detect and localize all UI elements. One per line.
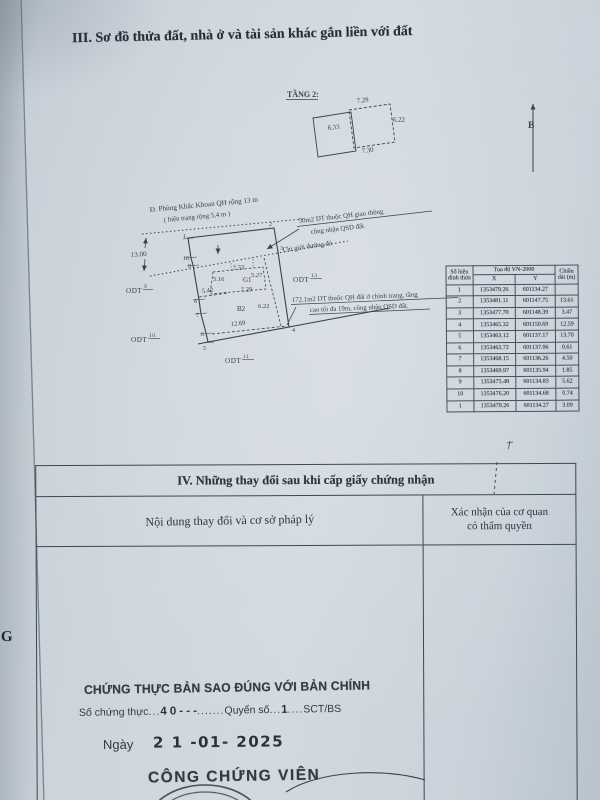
edge-cut-letter: G [1, 629, 13, 646]
svg-text:ODT: ODT [225, 357, 241, 365]
coord-cell: 1353465.32 [473, 319, 516, 331]
coord-header-y: Y [515, 274, 555, 284]
coord-cell: 3.47 [555, 307, 578, 319]
coord-cell: 1353463.12 [473, 330, 516, 342]
coord-header-length: Chiều dài (m) [555, 265, 578, 284]
coord-row: 11353479.26601134.273.09 [447, 400, 579, 413]
svg-text:7.33: 7.33 [233, 264, 245, 272]
coord-row: 71353468.15601136.264.50 [447, 353, 579, 366]
coord-cell: 5 [446, 331, 473, 343]
odt-zone-labels: ODT 9 ODT 10 ODT 11 ODT 13 [126, 273, 322, 365]
coord-cell: 8 [447, 366, 474, 378]
coord-row: 81353469.97601135.941.85 [447, 365, 579, 378]
svg-text:ODT: ODT [126, 287, 142, 295]
coord-cell: 601137.06 [516, 342, 556, 354]
floor-plan-solid-room [313, 112, 356, 157]
changes-left-header: Nội dung thay đổi và cơ sở pháp lý [36, 495, 423, 546]
coord-cell: 1353481.11 [473, 296, 516, 308]
coord-cell: 601134.83 [516, 377, 556, 389]
coord-row: 91353475.48601134.835.62 [447, 376, 579, 389]
changes-right-cell [424, 545, 577, 800]
coord-cell: 13.70 [556, 330, 579, 342]
coord-cell: 0.74 [556, 388, 579, 400]
svg-text:9: 9 [144, 284, 147, 290]
coord-cell: 1.85 [556, 365, 579, 377]
changes-left-cell [37, 545, 425, 800]
coord-cell: 4.50 [556, 353, 579, 365]
coord-cell: 601134.68 [516, 388, 556, 400]
coord-cell: 601134.27 [516, 400, 556, 412]
svg-text:7.29: 7.29 [241, 286, 253, 294]
red-line-label: Chỉ giới đường đỏ [282, 240, 333, 254]
coord-cell: 601134.27 [516, 284, 556, 296]
parcel-dimensions: 7.33 5.16 5.27 7.29 5.42 6.22 12.69 G1 B… [201, 264, 269, 328]
floor-dim-bottom: 7.30 [361, 147, 374, 155]
svg-text:13: 13 [311, 273, 318, 279]
svg-text:5.42: 5.42 [201, 287, 213, 295]
coord-header-x: X [473, 275, 516, 285]
svg-text:8: 8 [194, 299, 197, 305]
date-stamp: 2 1 -01- 2025 [153, 732, 284, 751]
coordinate-table: Số hiệu đỉnh thửa Tọa độ VN-2000 Chiều d… [445, 265, 579, 413]
coord-cell: 601137.17 [516, 330, 556, 342]
scanned-document-page: III. Sơ đồ thửa đất, nhà ở và tài sản kh… [0, 0, 600, 800]
coord-cell: 1353479.26 [474, 400, 517, 412]
svg-text:4: 4 [292, 328, 295, 334]
street-name: Đ. Phùng Khắc Khoan QH rộng 13 m [149, 196, 258, 214]
north-arrow-icon: B [528, 104, 535, 172]
coord-cell: 1353479.26 [473, 284, 516, 296]
coord-cell: 12.59 [555, 318, 578, 330]
coord-cell: 601147.75 [516, 295, 556, 307]
svg-text:5.16: 5.16 [213, 276, 225, 283]
parcel-outline [183, 228, 390, 344]
svg-text:5.27: 5.27 [251, 272, 263, 279]
coord-cell: 0.61 [556, 342, 579, 354]
svg-text:11: 11 [243, 354, 249, 360]
coord-cell: 1353476.20 [474, 388, 517, 400]
section4-title: IV. Những thay đổi sau khi cấp giấy chứn… [36, 464, 575, 497]
vertex-labels: 1 2 3 4 5 6 7 8 9 10 [183, 222, 295, 352]
svg-text:công nhận QSD đất.: công nhận QSD đất. [310, 223, 366, 236]
floor-plan-dashed-room [349, 104, 395, 148]
coord-cell [555, 284, 578, 296]
coord-cell: 6 [447, 342, 474, 354]
coord-cell: 9 [447, 377, 474, 389]
zone-g1: G1 [243, 276, 252, 284]
floor-plan-title: TẦNG 2: [287, 89, 319, 99]
serial-label: Số chứng thực [79, 706, 149, 719]
zone-b2: B2 [237, 305, 246, 313]
road-note: 50m2 DT thuộc QH giao thông công nhận QS… [267, 208, 432, 249]
svg-text:1: 1 [183, 234, 186, 240]
coord-cell: 10 [447, 389, 474, 401]
residential-note: 172.1m2 DT thuộc QH đất ở chỉnh trang, t… [287, 291, 458, 325]
street-status: ( hiện trạng rộng 5,4 m ) [164, 211, 231, 224]
notary-title: CÔNG CHỨNG VIÊN [148, 766, 321, 787]
coord-cell: 601148.39 [516, 307, 556, 319]
serial-value: 4 0 [160, 705, 176, 717]
coord-cell: 601136.26 [516, 353, 556, 365]
svg-text:50m2 DT thuộc QH giao thông: 50m2 DT thuộc QH giao thông [298, 208, 384, 225]
coord-cell: 13.61 [555, 295, 578, 307]
coord-row: 61353463.72601137.060.61 [447, 342, 579, 355]
coord-cell: 1353468.15 [473, 354, 516, 366]
floor-dim-top: 7.29 [356, 97, 369, 105]
book-label: Quyển số [224, 704, 269, 717]
floor-dim-left: 6.33 [327, 124, 340, 132]
floor-dim-right: 6.22 [393, 117, 405, 124]
coord-cell: 3.09 [556, 400, 579, 412]
road-width-dim: 13.00 [131, 250, 148, 259]
coord-cell: 601135.94 [516, 365, 556, 377]
svg-text:9: 9 [188, 264, 191, 270]
coord-cell: 2 [446, 296, 473, 308]
coord-cell: 5.62 [556, 376, 579, 388]
coord-cell: 1353469.97 [473, 365, 516, 377]
svg-text:10: 10 [183, 256, 189, 262]
svg-text:10: 10 [149, 333, 156, 339]
coord-row: 11353479.26601134.27 [446, 284, 578, 297]
coord-cell: 1353463.72 [473, 342, 516, 354]
coord-cell: 4 [446, 319, 473, 331]
coord-row: 101353476.20601134.680.74 [447, 388, 579, 401]
svg-text:ODT: ODT [131, 336, 147, 344]
svg-text:6.22: 6.22 [258, 303, 269, 310]
coord-row: 51353463.12601137.1713.70 [446, 330, 578, 343]
coord-header-vertex: Số hiệu đỉnh thửa [446, 266, 473, 285]
coord-row: 21353481.11601147.7513.61 [446, 295, 578, 308]
coord-cell: 1353477.70 [473, 307, 516, 319]
serial-suffix: SCT/BS [303, 703, 341, 716]
coord-cell: 1 [447, 400, 474, 412]
changes-right-header: Xác nhận của cơ quan có thẩm quyền [423, 495, 575, 545]
coord-row: 41353465.32601150.6912.59 [446, 318, 578, 331]
coord-cell: 1 [446, 284, 473, 296]
coord-row: 31353477.70601148.393.47 [446, 307, 578, 320]
svg-text:7: 7 [196, 313, 199, 319]
svg-text:12.69: 12.69 [231, 320, 246, 328]
date-label: Ngày [103, 737, 134, 752]
svg-text:5: 5 [203, 346, 206, 352]
svg-text:6: 6 [201, 332, 204, 338]
svg-text:2: 2 [269, 222, 272, 228]
floor-plan: TẦNG 2: 7.29 6.22 7.30 6.33 [286, 89, 405, 157]
svg-text:3: 3 [280, 246, 283, 252]
svg-text:ODT: ODT [293, 276, 309, 284]
north-label: B [528, 121, 535, 131]
coord-cell: 3 [446, 308, 473, 320]
coord-cell: 1353475.48 [473, 377, 516, 389]
coord-cell: 7 [447, 354, 474, 366]
serial-dashes: - - - [179, 705, 197, 717]
coord-cell: 601150.69 [516, 319, 556, 331]
